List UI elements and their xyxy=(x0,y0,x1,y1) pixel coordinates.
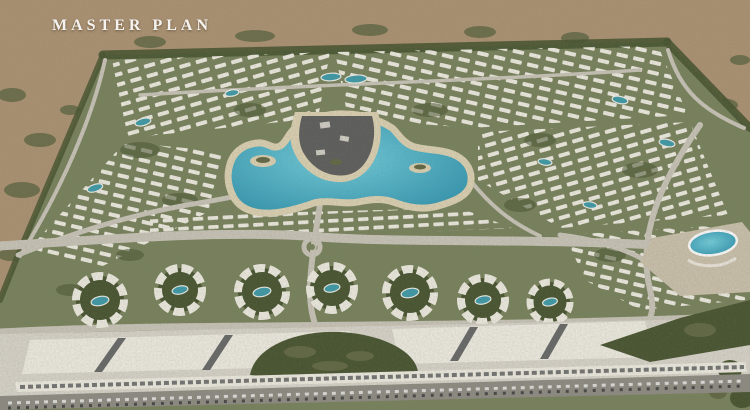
aerial-scene xyxy=(0,0,750,410)
master-plan-render: MASTER PLAN xyxy=(0,0,750,410)
grain-texture xyxy=(0,0,750,410)
master-plan-title: MASTER PLAN xyxy=(52,17,212,35)
